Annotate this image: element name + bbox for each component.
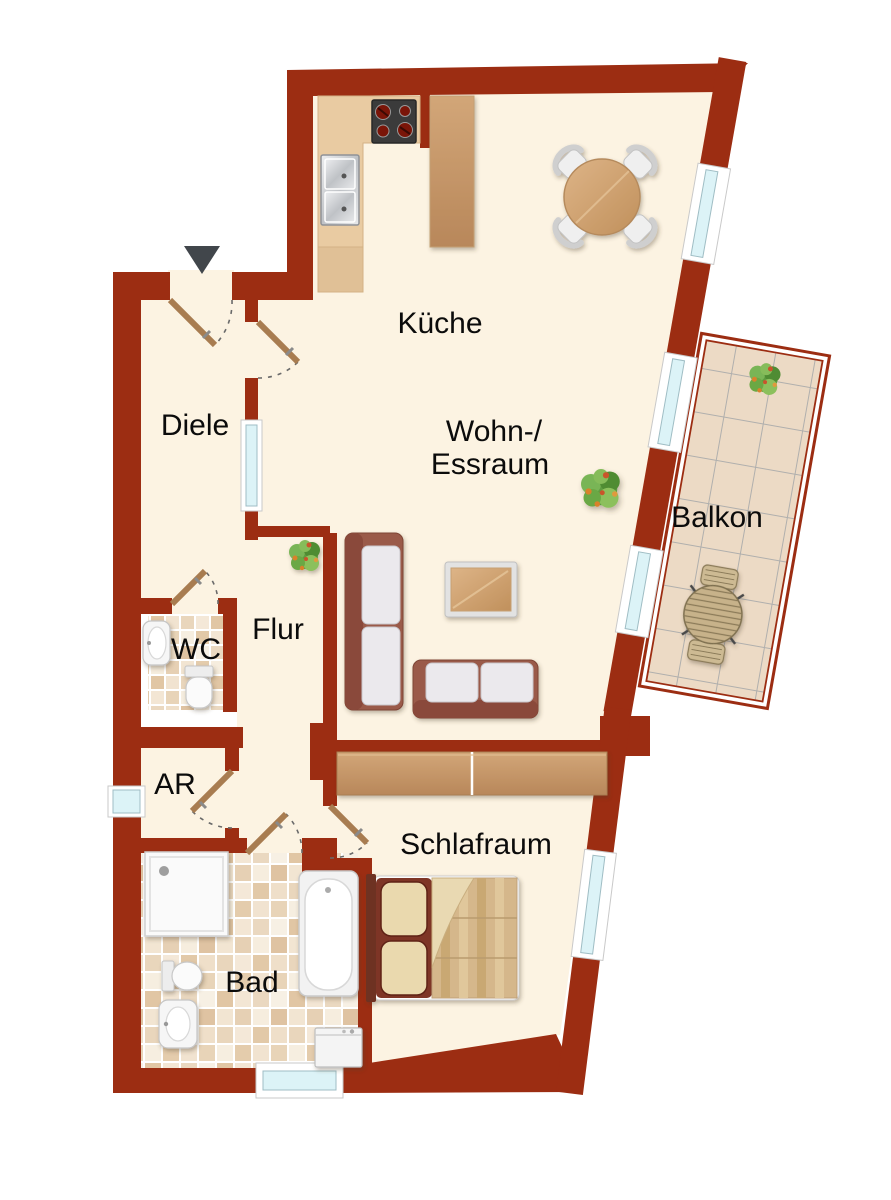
- bed-pillow: [381, 882, 427, 936]
- shaft-strip-horizontal: [141, 710, 237, 727]
- wall-kitchen-left: [287, 70, 313, 300]
- wall-diele-right-b: [245, 378, 258, 423]
- wall-bottom-left: [113, 1068, 262, 1093]
- wall-left-lower: [113, 815, 141, 1093]
- sofa-horizontal: [413, 660, 538, 718]
- window-bad-bottom: [256, 1063, 343, 1098]
- room-label-wc: WC: [171, 633, 221, 666]
- wall-flur-stub: [310, 723, 323, 780]
- wardrobe: [337, 752, 607, 795]
- wall-diele-top-right: [232, 272, 313, 300]
- room-label-wohnraum-line1: Wohn-/: [446, 415, 543, 448]
- floor-entrance-opening: [168, 270, 234, 302]
- entrance-arrow-icon: [184, 246, 220, 274]
- room-label-kueche: Küche: [397, 307, 482, 340]
- wall-flur-right: [323, 533, 337, 806]
- window-diele-interior: [241, 420, 262, 511]
- bed-blanket: [432, 878, 517, 998]
- room-label-diele: Diele: [161, 409, 229, 442]
- wall-top: [287, 63, 748, 96]
- sofa-vertical: [345, 533, 403, 710]
- room-label-balkon: Balkon: [671, 501, 763, 534]
- wall-kitchen-stub: [420, 92, 430, 148]
- bad-toilet: [162, 961, 202, 991]
- wall-left-upper: [113, 272, 141, 788]
- floorplan-svg: Küche Wohn-/ Essraum Diele Flur WC AR Ba…: [0, 0, 891, 1200]
- double-sink-icon: [321, 155, 359, 225]
- room-label-flur: Flur: [252, 613, 304, 646]
- window-ar-left: [108, 786, 145, 817]
- shower: [145, 852, 228, 936]
- double-bed: [366, 874, 519, 1002]
- kitchen-cabinet: [318, 247, 363, 292]
- room-label-wohnraum-line2: Essraum: [431, 448, 549, 481]
- bathtub: [299, 871, 358, 996]
- wall-diele-right-a: [245, 296, 258, 322]
- coffee-table: [445, 562, 517, 617]
- wc-washbasin: [143, 621, 170, 665]
- wall-wc-top-left: [141, 598, 172, 614]
- bed-pillow: [381, 941, 427, 995]
- room-label-bad: Bad: [225, 966, 278, 999]
- wall-ar-top: [141, 727, 243, 748]
- washing-machine: [315, 1028, 362, 1067]
- wall-ar-right-a: [225, 748, 239, 771]
- wall-bad-top-left: [141, 838, 247, 853]
- floorplan-canvas: Küche Wohn-/ Essraum Diele Flur WC AR Ba…: [0, 0, 891, 1200]
- wall-wc-right: [223, 598, 237, 712]
- kitchen-island: [430, 96, 474, 247]
- bed-headboard: [366, 874, 376, 1002]
- room-label-schlafraum: Schlafraum: [400, 828, 552, 861]
- bad-bidet: [159, 1000, 197, 1048]
- wc-toilet: [185, 666, 213, 708]
- stove-icon: [372, 100, 416, 143]
- wall-flur-connector: [250, 526, 330, 537]
- room-label-ar: AR: [154, 768, 196, 801]
